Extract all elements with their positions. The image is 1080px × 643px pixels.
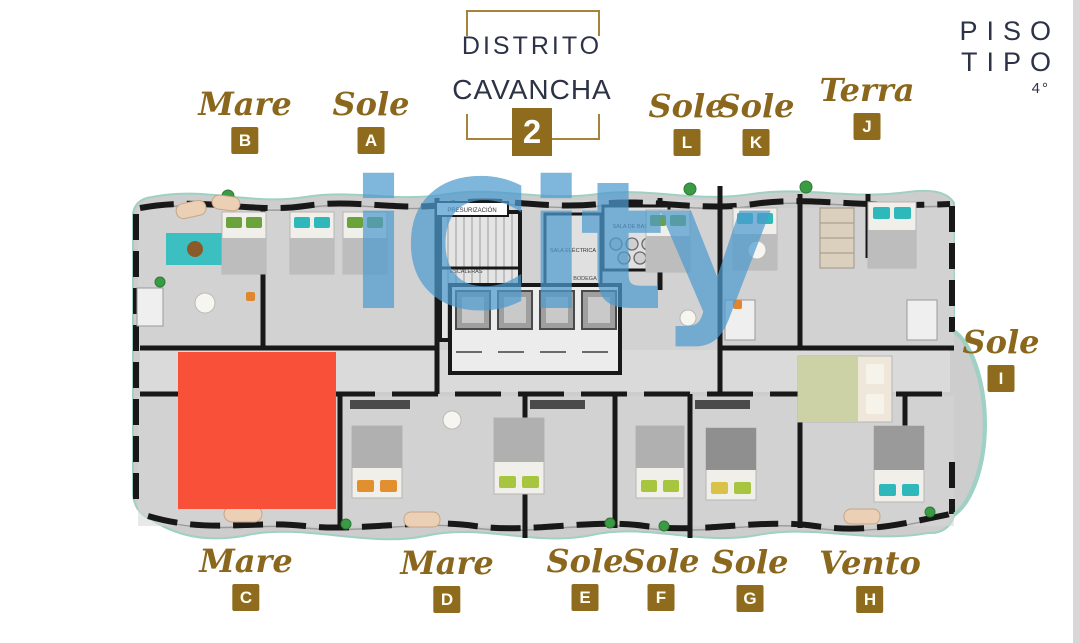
unit-label-sole-e: Sole E [547,545,624,611]
unit-label-sole-f: Sole F [623,545,700,611]
unit-label-sole-i: Sole I [963,326,1040,392]
unit-label-mare-b: Mare B [198,88,291,154]
unit-name: Mare [199,545,292,579]
storage-label: BODEGA [573,276,597,282]
stairs-label: ESCALERAS [449,269,482,275]
unit-letter-badge: L [674,129,701,156]
unit-label-sole-l: Sole L [649,90,726,156]
unit-label-vento-h: Vento H [819,547,921,613]
unit-name: Sole [547,545,624,579]
logo-number-badge: 2 [512,108,552,156]
unit-name: Sole [718,90,795,124]
unit-name: Sole [623,545,700,579]
pressurization-room: PRESURIZACIÓN [436,202,508,216]
living-chair [187,241,203,257]
unit-name: Mare [198,88,291,122]
electrical-room-label: SALA ELÉCTRICA [550,247,596,254]
unit-label-mare-c: Mare C [199,545,292,611]
unit-label-sole-k: Sole K [718,90,795,156]
unit-letter-badge: G [737,585,764,612]
unit-letter-badge: J [853,113,880,140]
unit-label-sole-a: Sole A [333,88,410,154]
unit-letter-badge: F [648,584,675,611]
floorplan-page: PRESURIZACIÓN ESCALERAS SALA ELÉCTRICA S… [0,0,1080,643]
page-edge [1073,0,1080,643]
unit-label-terra-j: Terra J [820,74,915,140]
unit-letter-badge: B [232,127,259,154]
pressurization-label: PRESURIZACIÓN [447,207,496,214]
unit-label-mare-d: Mare D [400,547,493,613]
unit-name: Sole [649,90,726,124]
unit-letter-badge: K [743,129,770,156]
unit-letter-badge: C [233,584,260,611]
unit-letter-badge: D [434,586,461,613]
unit-name: Sole [712,546,789,580]
bed-sole-i [798,356,892,422]
unit-letter-badge: I [988,365,1015,392]
unit-letter-badge: H [856,586,883,613]
unit-name: Mare [400,547,493,581]
unit-name: Vento [819,547,921,581]
highlighted-unit-mare-c [178,352,336,509]
unit-name: Sole [333,88,410,122]
unit-letter-badge: A [358,127,385,154]
unit-label-sole-g: Sole G [712,546,789,612]
unit-name: Terra [820,74,915,108]
unit-name: Sole [963,326,1040,360]
unit-letter-badge: E [572,584,599,611]
elevator-bank [450,285,620,373]
